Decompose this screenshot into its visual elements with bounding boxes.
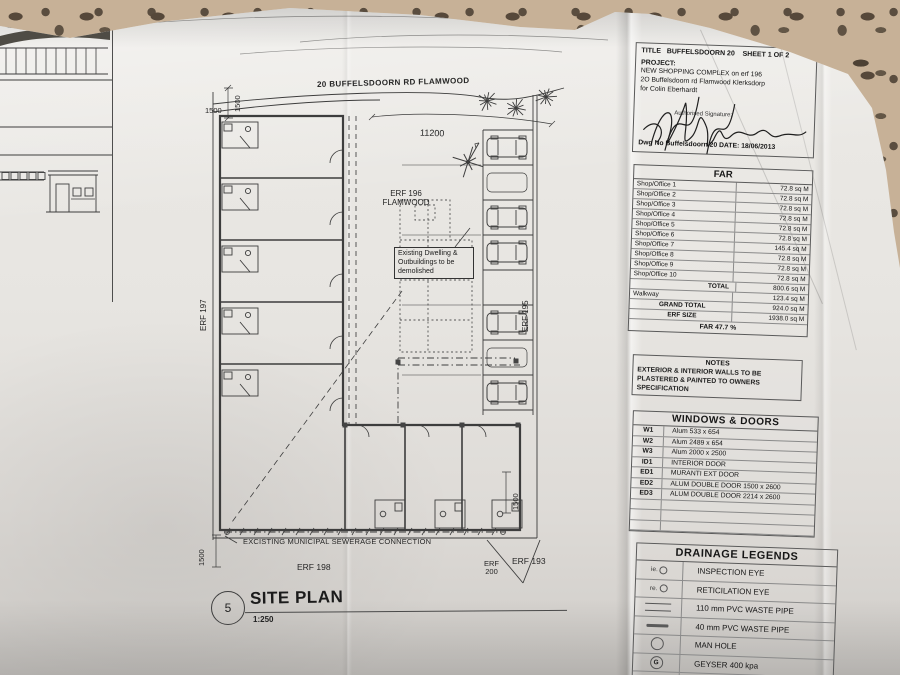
dim-1500-top: 1500 (234, 95, 242, 112)
notes-lines: EXTERIOR & INTERIOR WALLS TO BEPLASTERED… (637, 365, 798, 398)
text-line: Outbuildings to be (398, 259, 470, 268)
elevation-drawing-top-left (0, 4, 113, 302)
manhole-symbol (650, 637, 663, 650)
dim-1500-bottom-right: 1500 (512, 493, 520, 510)
dim-1500-top-left: 1500 (205, 107, 222, 115)
demolish-note-box: Existing Dwelling &Outbuildings to bedem… (394, 247, 474, 279)
dim-1500-bottom-left: 1500 (198, 549, 206, 566)
windows-doors-table: WINDOWS & DOORS W1Alum 533 x 654W2Alum 2… (629, 410, 819, 537)
re-symbol: re. (650, 579, 668, 597)
erf-boundary (213, 92, 540, 583)
notes-box: NOTES EXTERIOR & INTERIOR WALLS TO BEPLA… (631, 354, 802, 401)
erf-196-label: ERF 196 FLAMWOOD (378, 190, 434, 208)
erf-200-line2: 200 (484, 568, 499, 576)
walkway-dashdot (225, 358, 520, 532)
erf-193-label: ERF 193 (512, 557, 546, 567)
sline-symbol (646, 624, 668, 628)
walkway-dashed (349, 116, 356, 425)
building-internals (220, 178, 462, 530)
far-rows: Shop/Office 172.8 sq MShop/Office 272.8 … (629, 179, 812, 325)
table-row: GULLEY (632, 671, 833, 696)
signature-scribble (637, 85, 815, 161)
tree-symbols (479, 89, 557, 117)
title-box: TITLE BUFFELSDOORN 20 SHEET 1 OF 2 PROJE… (632, 42, 818, 158)
erf-196-line2: FLAMWOOD (378, 199, 434, 208)
gulley-symbol (650, 674, 662, 687)
geyser-symbol: G (649, 656, 662, 669)
sheet-number-circle: 5 (211, 591, 245, 625)
dim-11200: 11200 (420, 128, 445, 139)
colonnade-columns (343, 359, 521, 428)
photo-of-site-plan: { "photo": { "handwritten_note": "910/6"… (0, 0, 900, 675)
erf-195-label: ERF 195 (522, 300, 531, 332)
paper-sheet: 20 BUFFELSDOORN RD FLAMWOOD 11200 1500 1… (0, 0, 900, 675)
windows-doors-rows: W1Alum 533 x 654W2Alum 2489 x 654W3Alum … (630, 425, 818, 536)
site-plan-title: SITE PLAN (250, 587, 344, 609)
site-plan-scale: 1:250 (253, 615, 273, 624)
text-line: demolished (398, 268, 470, 277)
dline-symbol (645, 602, 671, 611)
sewer-label: EXCISTING MUNICIPAL SEWERAGE CONNECTION (243, 538, 431, 546)
wc-rooms (222, 122, 522, 528)
north-star-symbol (453, 143, 484, 177)
ie-symbol: ie. (651, 561, 668, 579)
elevation-drawing-small-house (0, 127, 112, 212)
text-line: Existing Dwelling & (398, 250, 470, 259)
drainage-rows: ie.INSPECTION EYEre.RETICILATION EYE110 … (632, 560, 836, 696)
erf-198-label: ERF 198 (297, 563, 331, 573)
erf-200-label: ERF 200 (484, 560, 499, 577)
far-table: FAR Shop/Office 172.8 sq MShop/Office 27… (628, 164, 814, 337)
erf-197-label: ERF 197 (200, 299, 209, 331)
